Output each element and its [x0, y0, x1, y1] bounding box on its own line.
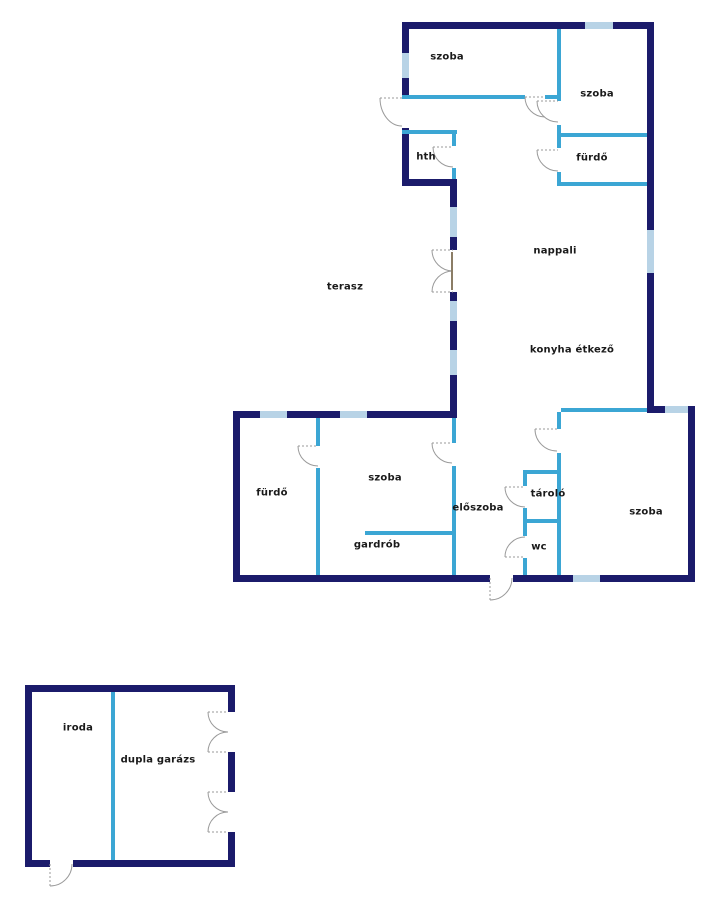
room-label-szoba-top-right: szoba — [580, 89, 614, 100]
interior-walls — [111, 29, 647, 860]
garage-door-2 — [208, 792, 228, 832]
floor-plan: szoba szoba fürdő hth nappali terasz kon… — [0, 0, 711, 900]
main-entrance-door — [490, 578, 512, 600]
terasz-french-door — [432, 250, 453, 292]
szoba-middle-door — [432, 443, 452, 463]
room-label-gardrob: gardrób — [354, 540, 400, 551]
room-label-konyha-etkezo: konyha étkező — [530, 345, 614, 356]
furdo-top-door — [537, 150, 558, 171]
room-label-wc: wc — [531, 542, 547, 553]
room-label-terasz: terasz — [327, 282, 363, 293]
room-label-iroda: iroda — [63, 723, 93, 734]
room-label-hth: hth — [416, 152, 436, 163]
tarolo-door — [505, 487, 525, 507]
outer-walls — [25, 22, 695, 867]
szoba-bottom-right-door — [535, 429, 557, 451]
hth-door — [433, 147, 453, 167]
wc-door — [505, 537, 525, 557]
doors — [50, 97, 558, 886]
room-label-furdo-lower: fürdő — [256, 488, 287, 499]
szoba-top-right-door — [537, 101, 558, 122]
room-label-szoba-middle: szoba — [368, 473, 402, 484]
furdo-lower-door — [298, 446, 318, 466]
room-label-dupla-garazs: dupla garázs — [121, 755, 196, 766]
room-label-nappali: nappali — [533, 246, 576, 257]
terasz-exterior-door — [380, 98, 402, 126]
iroda-exterior-door — [50, 864, 72, 886]
floorplan-drawing — [0, 0, 711, 900]
room-label-eloszoba: előszoba — [452, 503, 503, 514]
room-label-szoba-bottom-right: szoba — [629, 507, 663, 518]
room-label-szoba-top-left: szoba — [430, 52, 464, 63]
room-label-furdo-top: fürdő — [576, 153, 607, 164]
garage-door-1 — [208, 712, 228, 752]
windows — [260, 22, 688, 582]
room-label-tarolo: tároló — [531, 489, 566, 500]
